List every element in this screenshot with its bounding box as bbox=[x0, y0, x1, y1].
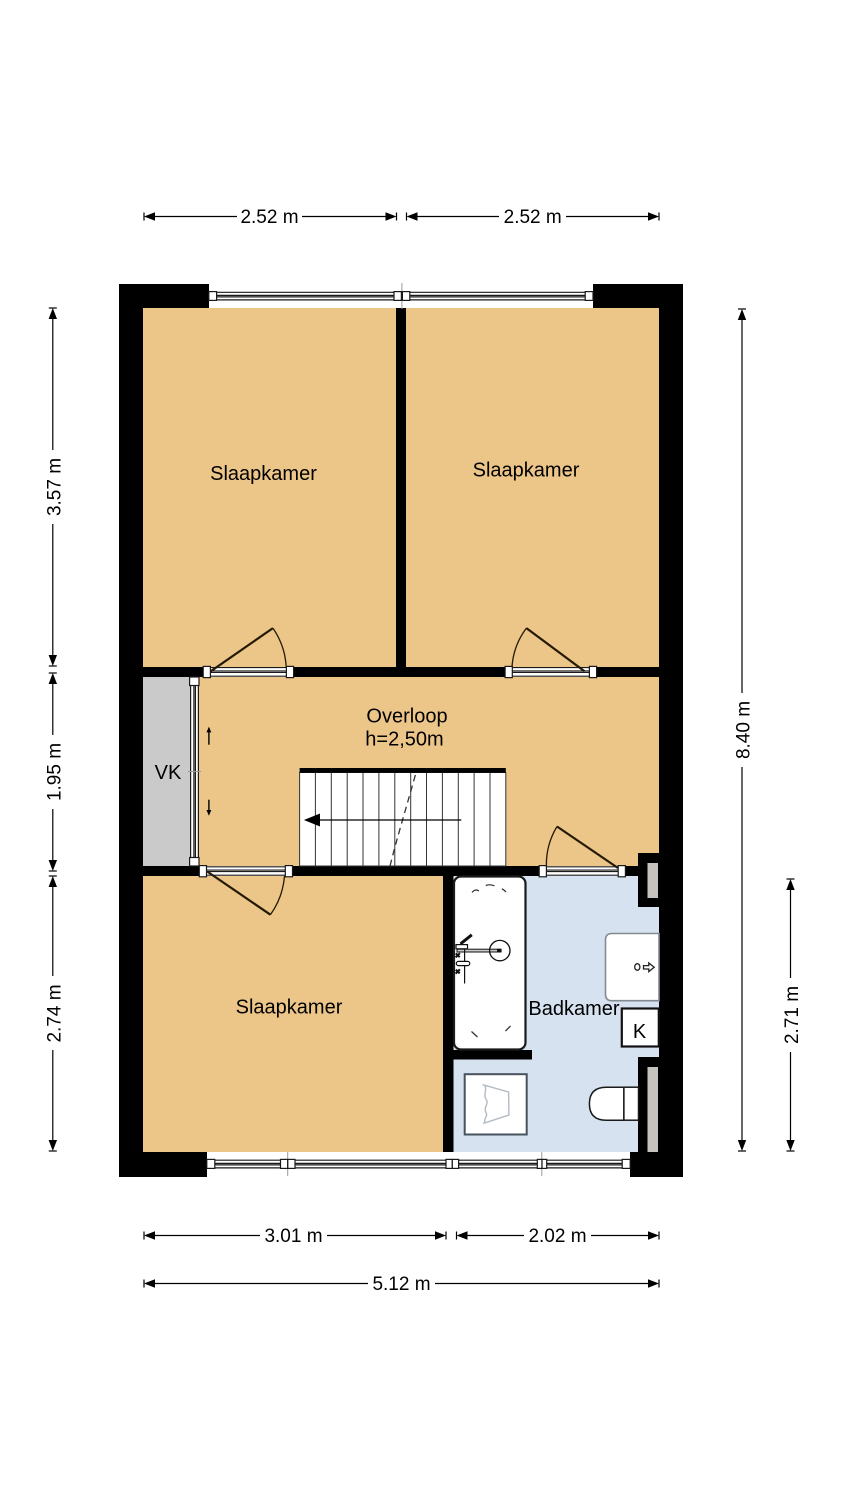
svg-text:5.12 m: 5.12 m bbox=[372, 1274, 430, 1295]
svg-text:K: K bbox=[633, 1021, 647, 1043]
svg-text:VK: VK bbox=[155, 762, 182, 784]
svg-text:3.01 m: 3.01 m bbox=[264, 1226, 322, 1247]
svg-text:8.40 m: 8.40 m bbox=[734, 701, 755, 759]
svg-text:2.71 m: 2.71 m bbox=[782, 986, 803, 1044]
svg-text:Slaapkamer: Slaapkamer bbox=[473, 460, 580, 482]
svg-text:2.02 m: 2.02 m bbox=[528, 1226, 586, 1247]
svg-text:2.74 m: 2.74 m bbox=[44, 984, 65, 1042]
svg-text:Overloop: Overloop bbox=[366, 706, 447, 728]
svg-text:1.95 m: 1.95 m bbox=[44, 743, 65, 801]
svg-text:3.57 m: 3.57 m bbox=[44, 458, 65, 516]
svg-text:Slaapkamer: Slaapkamer bbox=[210, 463, 317, 485]
svg-text:2.52 m: 2.52 m bbox=[504, 207, 562, 228]
svg-text:Slaapkamer: Slaapkamer bbox=[236, 997, 343, 1019]
svg-text:2.52 m: 2.52 m bbox=[240, 207, 298, 228]
svg-text:Badkamer: Badkamer bbox=[528, 998, 619, 1020]
svg-text:h=2,50m: h=2,50m bbox=[365, 729, 443, 751]
